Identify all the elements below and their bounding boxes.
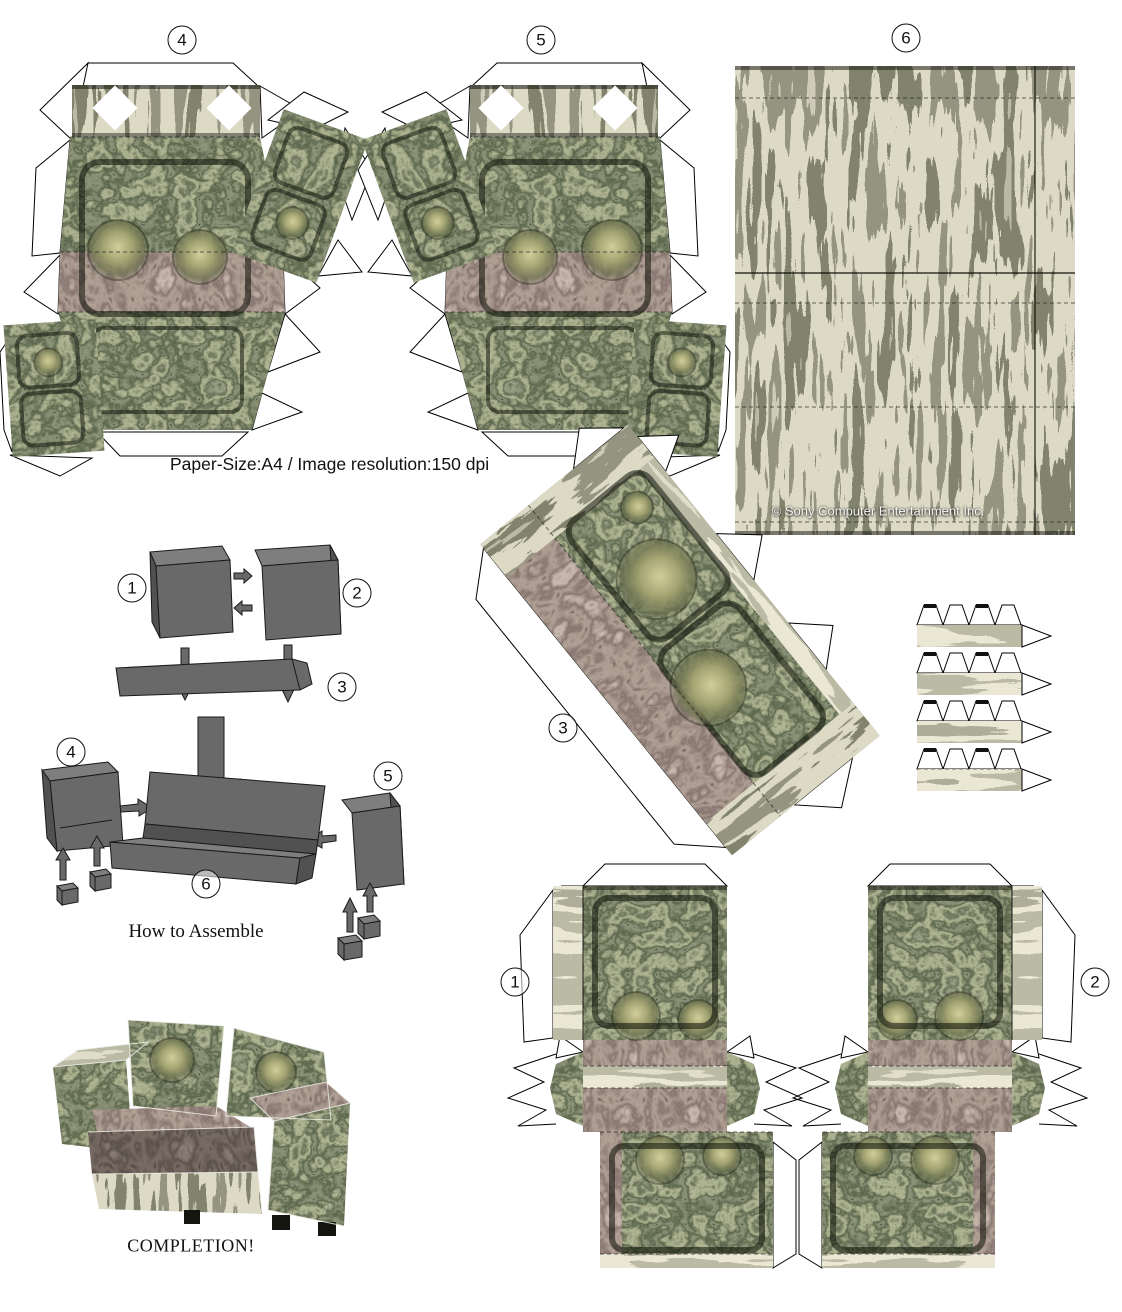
copyright-text: © Sony Computer Entertainment Inc. — [772, 504, 985, 519]
glue-strip — [917, 605, 1051, 647]
completed-sofa-render — [53, 1020, 350, 1236]
piece-6-label: 6 — [892, 24, 921, 53]
piece-2-template — [793, 864, 1087, 1268]
assembly-step-1-label: 1 — [118, 574, 147, 603]
piece-1-template — [508, 864, 802, 1268]
piece-4-side-flap-bottom — [4, 319, 105, 457]
piece-3-label: 3 — [549, 714, 578, 743]
assembly-feet-right — [338, 883, 380, 960]
assembly-box-5 — [342, 793, 404, 890]
sheet-graphics — [0, 0, 1122, 1312]
assembly-step-2-label: 2 — [343, 579, 372, 608]
piece-6-template — [735, 66, 1075, 535]
glue-strip — [917, 749, 1051, 791]
arrow-right-icon — [234, 569, 252, 583]
glue-strip — [917, 701, 1051, 743]
piece-5-template — [358, 63, 730, 476]
assembly-box-4 — [42, 762, 123, 851]
piece-1-texture-panels — [550, 886, 773, 1268]
assembly-box-1 — [150, 546, 233, 638]
glue-strip — [917, 653, 1051, 695]
assembly-step-6-label: 6 — [192, 870, 221, 899]
assembly-step-3-label: 3 — [328, 673, 357, 702]
arrow-up-icon — [343, 898, 357, 932]
assembly-step-5-label: 5 — [374, 762, 403, 791]
how-to-assemble-title: How to Assemble — [128, 921, 263, 943]
assembly-base-6 — [110, 772, 325, 884]
arrow-left-icon — [234, 601, 252, 615]
paper-info-text: Paper-Size:A4 / Image resolution:150 dpi — [170, 454, 489, 475]
piece-4-template — [0, 63, 372, 476]
assembly-box-2 — [255, 545, 341, 640]
assembly-step-4-label: 4 — [57, 738, 86, 767]
arrow-up-icon — [56, 848, 70, 880]
piece-5-label: 5 — [527, 26, 556, 55]
piece-4-label: 4 — [168, 26, 197, 55]
assembly-bar-3 — [116, 659, 312, 696]
piece-1-label: 1 — [501, 968, 530, 997]
glue-strips — [917, 605, 1051, 791]
completion-title: COMPLETION! — [127, 1236, 255, 1257]
piece-2-label: 2 — [1081, 968, 1110, 997]
assembly-diagram — [42, 545, 404, 960]
papercraft-sheet: Paper-Size:A4 / Image resolution:150 dpi… — [0, 0, 1122, 1312]
